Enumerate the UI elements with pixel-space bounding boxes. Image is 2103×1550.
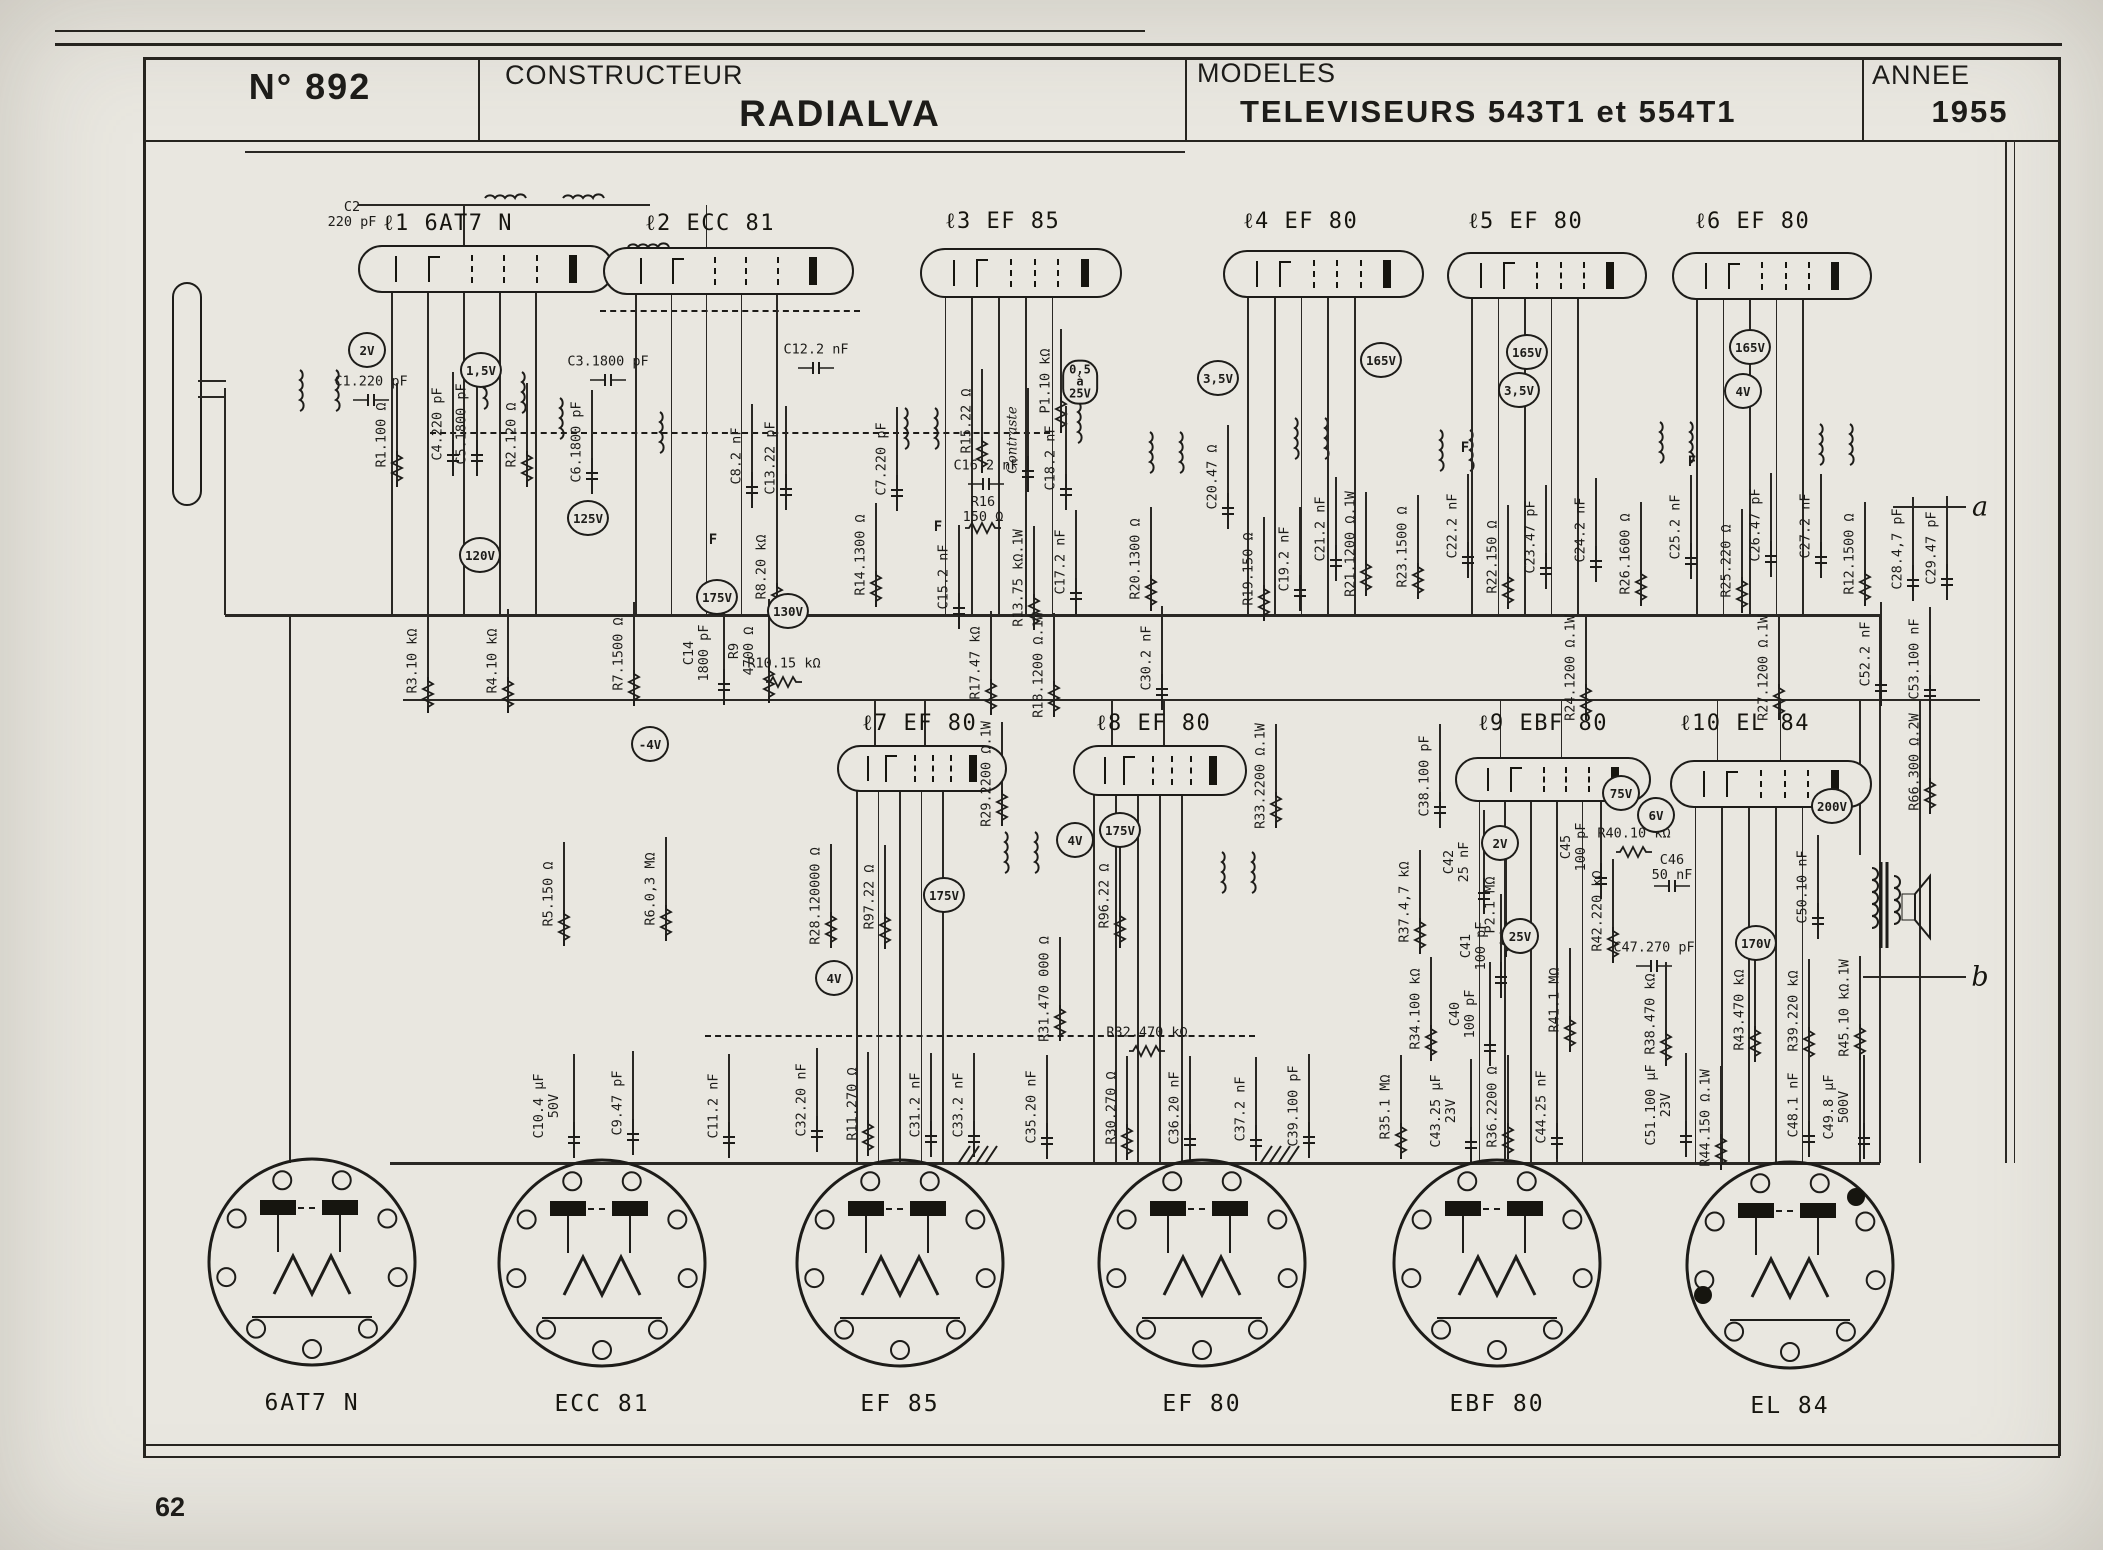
wire (1577, 295, 1579, 615)
component-label: R18.1200 Ω.1W (1031, 612, 1046, 718)
vacuum-tube (1073, 745, 1247, 796)
component-label: R21.1200 Ω.1W (1343, 491, 1358, 597)
tube-pin-icon (867, 756, 869, 781)
tube-pin-icon (1279, 261, 1291, 288)
component-label: R19.150 Ω (1241, 532, 1256, 605)
wire (1274, 294, 1276, 615)
tube-pin-icon (1536, 262, 1538, 289)
component-label: C37.2 nF (1233, 1076, 1248, 1141)
tube-pin-icon (569, 255, 577, 282)
component-label: R22.150 Ω (1485, 520, 1500, 593)
tube-pin-icon (1784, 770, 1786, 797)
wire (499, 289, 501, 615)
component-label: R24.1200 Ω.1W (1563, 615, 1578, 721)
resistor-symbol-icon (391, 451, 403, 487)
inductor-coil-icon (1652, 420, 1668, 466)
component-label: P1.10 kΩ (1038, 348, 1053, 413)
tube-pin-icon (1104, 757, 1106, 784)
component-label: C33.2 nF (951, 1072, 966, 1137)
component-label: R12.1500 Ω (1842, 513, 1857, 594)
wire (2014, 140, 2015, 1163)
tube-pin-icon (1560, 262, 1562, 289)
wire (706, 291, 708, 615)
component-label: C40100 pF (1448, 990, 1478, 1039)
capacitor-symbol-icon (1875, 670, 1887, 706)
resistor-symbol-icon (1054, 1005, 1066, 1041)
tube-pin-icon (1728, 263, 1740, 290)
tube-socket-diagram (1672, 1147, 1908, 1383)
wire (671, 291, 673, 615)
component-label: R37.4,7 kΩ (1397, 861, 1412, 942)
component-label: C48.1 nF (1786, 1072, 1801, 1137)
resistor-symbol-icon (996, 790, 1008, 826)
tube-pin-icon (1808, 262, 1810, 289)
component-label: R31.470 000 Ω (1037, 936, 1052, 1042)
voltage-badge: 175V (1099, 812, 1141, 848)
socket-label: EL 84 (1750, 1393, 1829, 1419)
component-label: R35.1 MΩ (1378, 1074, 1393, 1139)
wire (1748, 804, 1750, 1163)
tube-pin-icon (777, 257, 779, 284)
component-label: C20.47 Ω (1205, 444, 1220, 509)
inductor-coil-icon (1842, 422, 1858, 468)
component-label: C22.2 nF (1445, 493, 1460, 558)
resistor-symbol-icon (1258, 585, 1270, 621)
resistor-symbol-icon (1114, 912, 1126, 948)
tube-pin-icon (1726, 771, 1738, 798)
scan-page: N° 892 CONSTRUCTEUR RADIALVA MODELES TEL… (0, 0, 2103, 1550)
component-label: C4225 nF (1442, 842, 1472, 883)
tube-pin-icon (1256, 261, 1258, 287)
component-label: R10.15 kΩ (747, 656, 820, 671)
tube-pin-icon (1606, 262, 1614, 289)
wire (635, 291, 637, 615)
filament-label: F (709, 532, 717, 548)
component-label: R28.120000 Ω (808, 847, 823, 945)
component-label: R11.270 Ω (845, 1067, 860, 1140)
dashed-wire (600, 310, 860, 312)
tube-pin-icon (1360, 260, 1362, 287)
resistor-symbol-icon (870, 571, 882, 607)
tube-pin-icon (1057, 259, 1059, 288)
component-label: C26.47 pF (1748, 488, 1763, 561)
resistor-symbol-icon (879, 913, 891, 949)
wire (1863, 976, 1966, 978)
wire (1327, 294, 1329, 615)
component-label: C49.8 μF500V (1822, 1074, 1852, 1139)
component-label: C4.220 pF (430, 387, 445, 460)
component-label: R43.470 kΩ (1732, 969, 1747, 1050)
component-label: C5.1800 pF (454, 383, 469, 464)
capacitor-symbol-icon (1540, 553, 1552, 589)
tube-pin-icon (1010, 259, 1012, 288)
component-label: C24.2 nF (1573, 497, 1588, 562)
component-label: C23.47 pF (1523, 500, 1538, 573)
resistor-symbol-icon (1749, 1026, 1761, 1062)
capacitor-symbol-icon (590, 374, 626, 386)
tube-label: ℓ10 EL 84 (1680, 710, 1810, 736)
tube-pin-icon (640, 258, 642, 284)
component-label: C31.2 nF (908, 1072, 923, 1137)
capacitor-symbol-icon (1484, 1030, 1496, 1066)
tube-pin-icon (1336, 260, 1338, 287)
tube-pin-icon (1503, 262, 1515, 288)
voltage-badge: 125V (567, 500, 609, 536)
socket-label: EBF 80 (1449, 1391, 1544, 1417)
capacitor-symbol-icon (1462, 542, 1474, 578)
wire (1137, 792, 1139, 1163)
voltage-badge: 200V (1811, 788, 1853, 824)
inductor-coil-icon (997, 830, 1013, 876)
voltage-badge: 175V (696, 579, 738, 615)
resistor-symbol-icon (1145, 575, 1157, 611)
component-label: R33.2200 Ω.1W (1253, 723, 1268, 829)
tube-pin-icon (1583, 262, 1585, 289)
tube-pin-icon (1760, 770, 1762, 797)
capacitor-symbol-icon (1330, 545, 1342, 581)
inductor-coil-icon (483, 190, 529, 206)
component-label: R96.22 Ω (1097, 863, 1112, 928)
component-label: R15.22 Ω (959, 388, 974, 453)
tube-socket-diagram (484, 1145, 720, 1381)
resistor-symbol-icon (1502, 573, 1514, 609)
tube-pin-icon (428, 256, 440, 283)
tube-label: ℓ1 6AT7 N (383, 210, 513, 236)
component-label: R8.20 kΩ (754, 534, 769, 599)
component-label: R66.300 Ω.2W (1907, 713, 1922, 811)
voltage-badge: 3,5V (1498, 372, 1540, 408)
component-label: C45100 pF (1559, 823, 1589, 872)
component-label: C29.47 pF (1924, 511, 1939, 584)
vacuum-tube (920, 248, 1122, 298)
component-label: C35.20 nF (1024, 1070, 1039, 1143)
filament-label: F (1461, 440, 1469, 456)
component-label: R27.1200 Ω.1W (1756, 615, 1771, 721)
component-label: C13.22 pF (763, 421, 778, 494)
component-label: C141800 pF (682, 625, 712, 682)
component-label: R5.150 Ω (541, 861, 556, 926)
wire (1093, 792, 1095, 1163)
voltage-badge: 25V (1501, 918, 1539, 954)
page-number: 62 (155, 1492, 185, 1523)
component-label: R29.2200 Ω.1W (979, 721, 994, 827)
component-label: R17.47 kΩ (968, 626, 983, 699)
terminal-label: b (1971, 962, 1988, 993)
component-label: C8.2 nF (729, 428, 744, 485)
wire (289, 615, 291, 1163)
voltage-badge: 170V (1735, 925, 1777, 961)
tube-label: ℓ6 EF 80 (1695, 208, 1810, 234)
component-label: C9.47 pF (610, 1070, 625, 1135)
component-label: C6.1800 pF (569, 401, 584, 482)
inductor-coil-icon (897, 406, 913, 452)
tube-pin-icon (1171, 756, 1173, 785)
wire (198, 380, 226, 382)
resistor-symbol-icon (985, 679, 997, 715)
component-label: C11.2 nF (706, 1073, 721, 1138)
tube-pin-icon (932, 755, 934, 782)
tube-pin-icon (1831, 262, 1839, 289)
voltage-badge: 4V (1056, 822, 1094, 858)
tube-pin-icon (1487, 768, 1489, 792)
capacitor-symbol-icon (1495, 962, 1507, 998)
wire (971, 294, 973, 615)
inductor-coil-icon (1432, 428, 1448, 474)
capacitor-symbol-icon (1070, 578, 1082, 614)
inductor-coil-icon (1812, 422, 1828, 468)
voltage-badge: 4V (1724, 373, 1762, 409)
tube-pin-icon (976, 259, 988, 287)
tube-pin-icon (1034, 259, 1036, 288)
component-label: C3.1800 pF (567, 354, 648, 369)
component-label: C21.2 nF (1313, 496, 1328, 561)
component-label: C52.2 nF (1858, 621, 1873, 686)
wire (878, 788, 880, 1163)
vacuum-tube (1672, 252, 1872, 300)
component-label: C25.2 nF (1668, 494, 1683, 559)
tube-pin-icon (1761, 262, 1763, 289)
voltage-badge: 2V (1481, 825, 1519, 861)
inductor-coil-icon (1317, 416, 1333, 462)
voltage-badge: 165V (1506, 334, 1548, 370)
inductor-coil-icon (927, 406, 943, 452)
voltage-badge: 4V (815, 960, 853, 996)
voltage-badge: 75V (1602, 775, 1640, 811)
tube-label: ℓ8 EF 80 (1096, 710, 1211, 736)
component-label: R4.10 kΩ (485, 628, 500, 693)
capacitor-symbol-icon (1156, 674, 1168, 710)
capacitor-symbol-icon (968, 478, 1004, 490)
tube-pin-icon (672, 258, 684, 285)
component-label: C19.2 nF (1277, 526, 1292, 591)
component-label: R25.220 Ω (1719, 524, 1734, 597)
tube-pin-icon (1807, 770, 1809, 797)
tube-label: ℓ2 ECC 81 (645, 210, 775, 236)
voltage-badge: 130V (767, 593, 809, 629)
component-label: C1.220 pF (334, 374, 407, 389)
component-label: C41100 pF (1459, 922, 1489, 971)
voltage-badge: 175V (923, 877, 965, 913)
component-label: R2.120 Ω (504, 402, 519, 467)
vacuum-tube (603, 247, 854, 295)
wire (899, 788, 901, 1163)
vacuum-tube (1223, 250, 1424, 298)
wire (1159, 792, 1161, 1163)
resistor-symbol-icon (1129, 1045, 1165, 1057)
resistor-symbol-icon (1414, 918, 1426, 954)
capacitor-symbol-icon (1815, 542, 1827, 578)
voltage-badge: 120V (459, 537, 501, 573)
component-label: R44.150 Ω.1W (1698, 1069, 1713, 1167)
tube-pin-icon (1785, 262, 1787, 289)
resistor-symbol-icon (1736, 577, 1748, 613)
component-label: C4650 nF (1652, 853, 1693, 883)
inductor-coil-icon (1027, 830, 1043, 876)
wire (198, 396, 226, 398)
vacuum-tube (358, 245, 614, 293)
socket-label: ECC 81 (554, 1391, 649, 1417)
wire (245, 151, 1185, 153)
tube-pin-icon (1543, 767, 1545, 792)
resistor-symbol-icon (521, 451, 533, 487)
capacitor-symbol-icon (1590, 546, 1602, 582)
component-label: Contraste (1005, 406, 1020, 473)
tube-pin-icon (950, 755, 952, 782)
component-label: C27.2 nF (1798, 493, 1813, 558)
component-label: C51.100 μF23V (1644, 1064, 1674, 1145)
resistor-symbol-icon (422, 677, 434, 713)
voltage-badge: 165V (1360, 342, 1402, 378)
component-label: C38.100 pF (1417, 735, 1432, 816)
capacitor-symbol-icon (1294, 575, 1306, 611)
capacitor-symbol-icon (1924, 675, 1936, 711)
tube-socket-diagram (1379, 1145, 1615, 1381)
capacitor-symbol-icon (1685, 543, 1697, 579)
voltage-range-badge: 0,5à25V (1062, 360, 1098, 405)
tube-pin-icon (1480, 263, 1482, 288)
component-label: R20.1300 Ω (1128, 518, 1143, 599)
tube-label: ℓ4 EF 80 (1243, 208, 1358, 234)
socket-label: EF 80 (1162, 1391, 1241, 1417)
tube-pin-icon (914, 755, 916, 782)
inductor-coil-icon (552, 396, 568, 442)
wire (535, 289, 537, 615)
tube-pin-icon (809, 257, 817, 284)
filament-label: F (934, 519, 942, 535)
component-label: R97.22 Ω (862, 864, 877, 929)
component-label: R32.470 kΩ (1106, 1025, 1187, 1040)
capacitor-symbol-icon (953, 593, 965, 629)
component-label: C18.2 nF (1043, 425, 1058, 490)
capacitor-symbol-icon (1060, 474, 1072, 510)
component-label: R23.1500 Ω (1395, 506, 1410, 587)
component-label: C30.2 nF (1139, 625, 1154, 690)
component-label: R6.0,3 MΩ (643, 852, 658, 925)
resistor-symbol-icon (1859, 570, 1871, 606)
component-label: R38.470 kΩ (1643, 973, 1658, 1054)
tube-pin-icon (1588, 767, 1590, 792)
component-label: C50.10 nF (1795, 850, 1810, 923)
wire (942, 788, 944, 1163)
resistor-symbol-icon (825, 912, 837, 948)
tube-pin-icon (1705, 263, 1707, 289)
capacitor-symbol-icon (586, 458, 598, 494)
wire (1530, 798, 1532, 1163)
tube-label: ℓ9 EBF 80 (1478, 710, 1608, 736)
voltage-badge: 6V (1637, 797, 1675, 833)
vacuum-tube (1447, 252, 1647, 299)
tube-pin-icon (503, 255, 505, 282)
capacitor-symbol-icon (1941, 564, 1953, 600)
component-label: C15.2 nF (936, 544, 951, 609)
resistor-symbol-icon (1635, 570, 1647, 606)
capacitor-symbol-icon (746, 472, 758, 508)
capacitor-symbol-icon (1041, 1123, 1053, 1159)
resistor-symbol-icon (766, 676, 802, 688)
wire (1695, 804, 1697, 1163)
tube-pin-icon (395, 256, 397, 282)
component-label: C43.25 μF23V (1429, 1074, 1459, 1147)
filament-label: F (1688, 454, 1696, 470)
tube-pin-icon (1152, 756, 1154, 785)
tube-socket-diagram (782, 1145, 1018, 1381)
component-label: R41.1 MΩ (1547, 967, 1562, 1032)
wire (1802, 296, 1804, 615)
voltage-badge: 165V (1729, 329, 1771, 365)
component-label: C53.100 nF (1907, 618, 1922, 699)
capacitor-symbol-icon (723, 1122, 735, 1158)
capacitor-symbol-icon (471, 440, 483, 476)
capacitor-symbol-icon (891, 475, 903, 511)
component-label: R26.1600 Ω (1618, 513, 1633, 594)
capacitor-symbol-icon (780, 474, 792, 510)
capacitor-symbol-icon (1812, 903, 1824, 939)
component-label: R30.270 Ω (1104, 1071, 1119, 1144)
component-label: C7.220 pF (874, 422, 889, 495)
component-label: C12.2 nF (783, 342, 848, 357)
component-label: R14.1300 Ω (853, 514, 868, 595)
tube-pin-icon (536, 255, 538, 282)
component-label: C10.4 μF50V (532, 1073, 562, 1138)
inductor-coil-icon (1172, 430, 1188, 476)
component-label: C28.4,7 pF (1890, 508, 1905, 589)
inductor-coil-icon (1214, 850, 1230, 896)
resistor-symbol-icon (1425, 1025, 1437, 1061)
component-label: C39.100 pF (1286, 1065, 1301, 1146)
component-label: R3.10 kΩ (405, 628, 420, 693)
component-label: R7.1500 Ω (611, 617, 626, 690)
voltage-badge: -4V (631, 726, 669, 762)
resistor-symbol-icon (1564, 1016, 1576, 1052)
component-label: R45.10 kΩ.1W (1837, 959, 1852, 1057)
wire (1775, 804, 1777, 1163)
capacitor-symbol-icon (1907, 565, 1919, 601)
socket-label: EF 85 (860, 1391, 939, 1417)
tube-socket-diagram (1084, 1145, 1320, 1381)
inductor-coil-icon (292, 368, 308, 414)
tube-pin-icon (471, 255, 473, 282)
component-label: C44.25 nF (1534, 1070, 1549, 1143)
tube-pin-icon (969, 755, 977, 782)
tube-pin-icon (1209, 756, 1217, 785)
component-label: R13.75 kΩ.1W (1011, 529, 1026, 627)
capacitor-symbol-icon (798, 362, 834, 374)
component-label: C2220 pF (328, 200, 377, 230)
voltage-badge: 2V (348, 332, 386, 368)
resistor-symbol-icon (502, 677, 514, 713)
wire (998, 294, 1000, 615)
terminal-label: a (1972, 492, 1988, 523)
tube-pin-icon (1565, 767, 1567, 792)
tube-label: ℓ3 EF 85 (945, 208, 1060, 234)
resistor-symbol-icon (1412, 563, 1424, 599)
resistor-symbol-icon (660, 905, 672, 941)
tube-pin-icon (1123, 756, 1135, 784)
tube-socket-diagram (194, 1144, 430, 1380)
wire (1479, 798, 1481, 1163)
voltage-badge: 3,5V (1197, 360, 1239, 396)
schematic-canvas: ℓ1 6AT7 Nℓ2 ECC 81ℓ3 EF 85ℓ4 EF 80ℓ5 EF … (0, 0, 2103, 1550)
component-label: R1.100 Ω (374, 402, 389, 467)
voltage-badge: 1,5V (460, 352, 502, 388)
component-label: R39.220 kΩ (1786, 970, 1801, 1051)
resistor-symbol-icon (1270, 792, 1282, 828)
component-label: C17.2 nF (1053, 529, 1068, 594)
resistor-symbol-icon (1924, 778, 1936, 814)
tube-pin-icon (1510, 767, 1522, 792)
tube-pin-icon (714, 257, 716, 284)
resistor-symbol-icon (1048, 681, 1060, 717)
